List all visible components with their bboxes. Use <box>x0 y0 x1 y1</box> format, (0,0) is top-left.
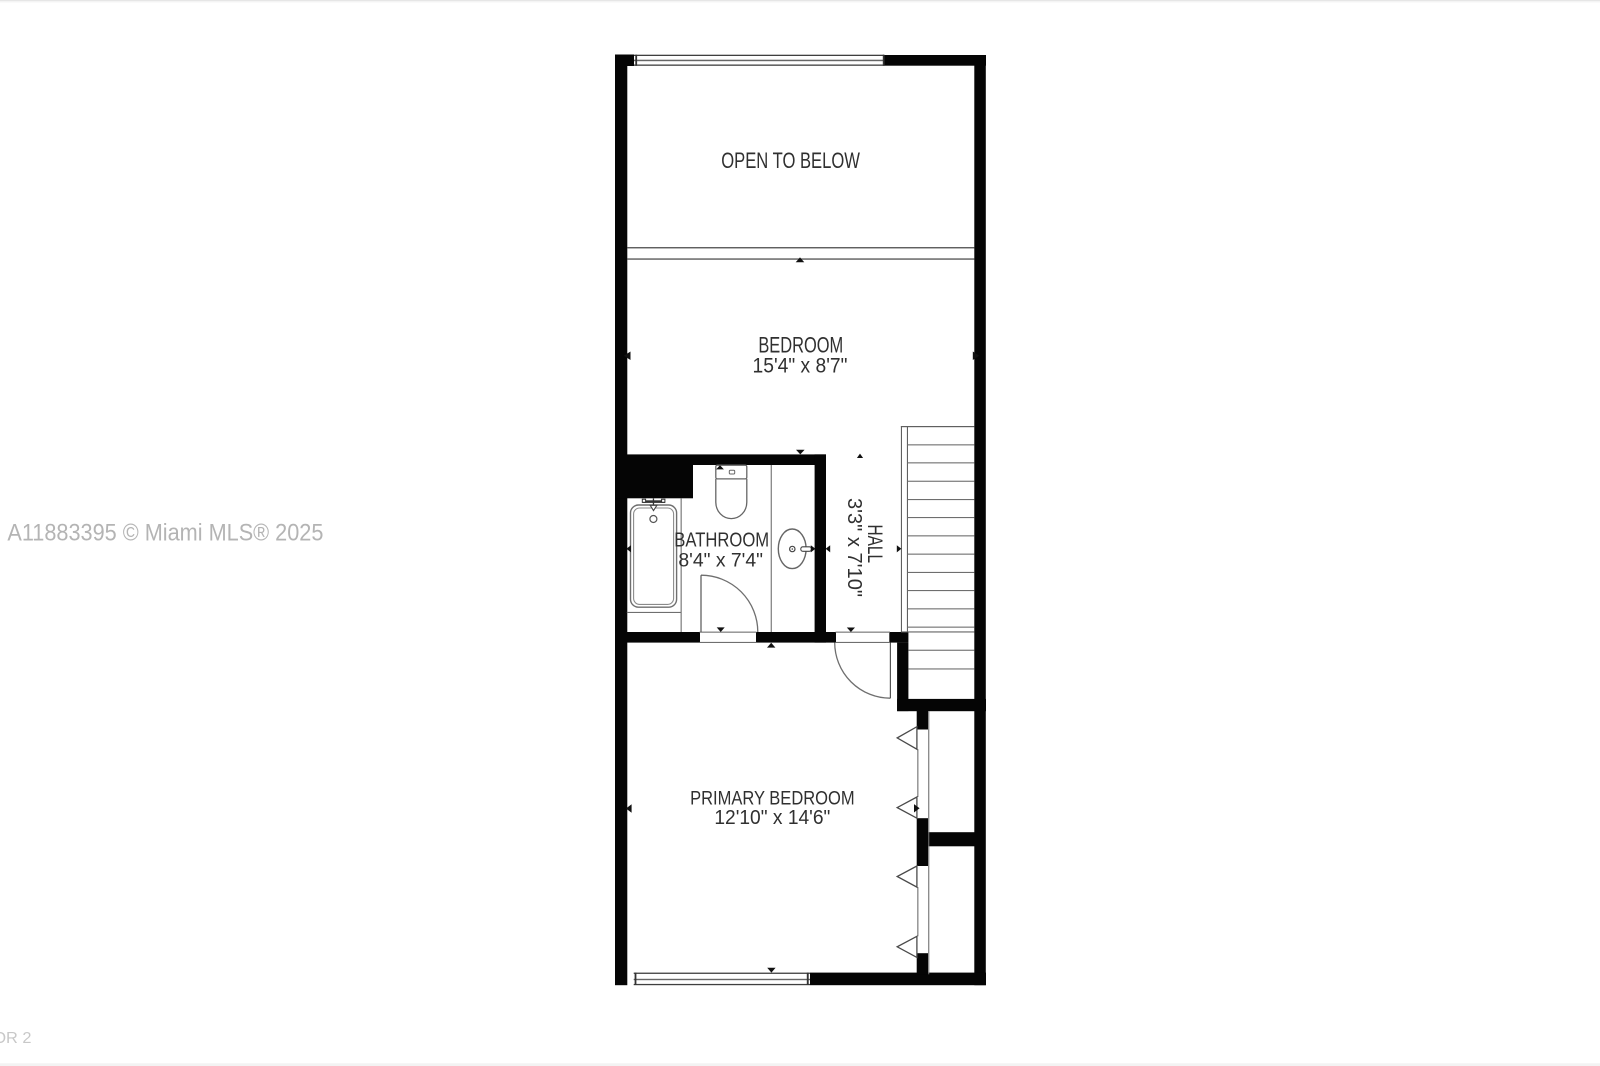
svg-text:A11883395 © Miami MLS® 2025: A11883395 © Miami MLS® 2025 <box>7 520 323 547</box>
svg-text:FLOOR 2: FLOOR 2 <box>0 1030 32 1047</box>
svg-text:BATHROOM: BATHROOM <box>674 529 769 552</box>
svg-text:OPEN TO BELOW: OPEN TO BELOW <box>721 148 860 173</box>
svg-text:15'4" x 8'7": 15'4" x 8'7" <box>753 355 848 378</box>
svg-text:12'10" x 14'6": 12'10" x 14'6" <box>714 807 830 829</box>
svg-text:8'4" x 7'4": 8'4" x 7'4" <box>678 550 763 572</box>
svg-text:3'3" x 7'10": 3'3" x 7'10" <box>843 498 866 597</box>
